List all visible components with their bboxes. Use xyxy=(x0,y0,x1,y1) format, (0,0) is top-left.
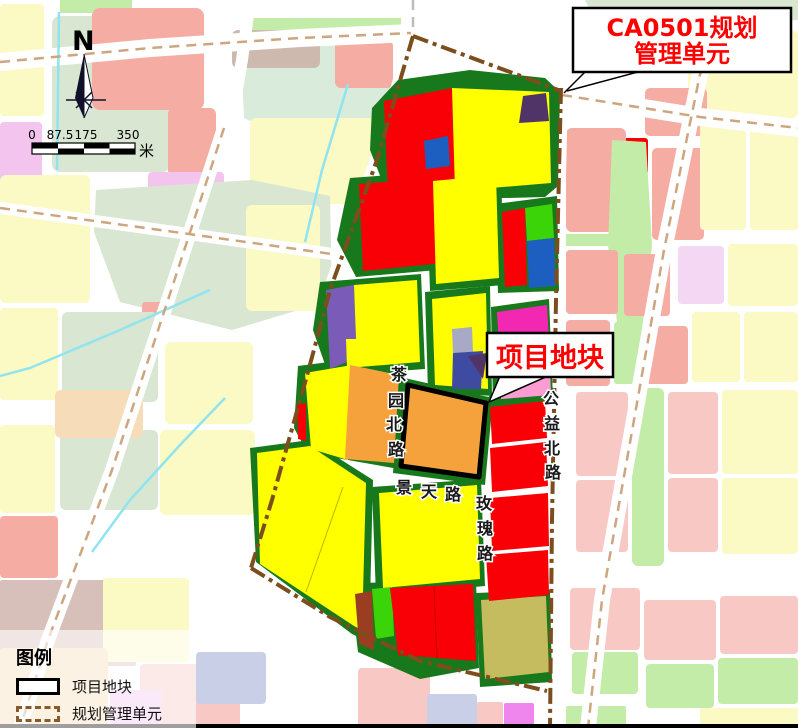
zoning-parcel xyxy=(490,401,547,444)
bg-parcel xyxy=(722,478,798,554)
scale-tick-3: 350 xyxy=(117,128,140,142)
bg-parcel xyxy=(0,516,58,578)
north-label: N xyxy=(72,26,95,57)
bg-parcel xyxy=(165,342,253,424)
road-label-char: 园 xyxy=(388,391,404,410)
road-label-char: 路 xyxy=(477,544,494,563)
zoning-parcel xyxy=(490,493,549,551)
bg-parcel xyxy=(160,430,255,515)
legend-item-label: 项目地块 xyxy=(72,676,132,697)
scale-tick-2: 175 xyxy=(75,128,98,142)
unit-label-callout: CA0501规划 管理单元 xyxy=(573,8,791,72)
map-canvas: 茶园北路景天路玫瑰路公益北路 CA0501规划 管理单元 项目地块 N 0 xyxy=(0,0,798,728)
unit-label-line2: 管理单元 xyxy=(634,40,730,68)
zoning-parcel xyxy=(486,550,549,601)
road-label: 玫瑰路 xyxy=(476,494,494,563)
zoning-parcel xyxy=(502,208,527,287)
zoning-parcel xyxy=(525,204,554,241)
bg-parcel xyxy=(692,312,740,382)
bg-parcel xyxy=(196,652,266,704)
scale-tick-0: 0 xyxy=(28,128,36,142)
scale-unit: 米 xyxy=(139,142,154,160)
legend-item-project: 项目地块 xyxy=(16,676,196,697)
zoning-parcel xyxy=(519,93,549,123)
bg-parcel xyxy=(744,312,798,382)
zoning-parcel xyxy=(433,175,499,284)
road-label-char: 天 xyxy=(421,482,438,501)
legend-title: 图例 xyxy=(16,644,196,670)
road-label-char: 景 xyxy=(396,478,412,497)
road-label-char: 益 xyxy=(544,414,560,433)
bg-parcel xyxy=(668,392,718,474)
road-label-char: 茶 xyxy=(390,365,408,384)
bg-parcel xyxy=(566,250,618,314)
bg-parcel xyxy=(700,120,746,230)
bg-parcel xyxy=(0,425,55,513)
bg-parcel xyxy=(0,308,58,400)
zoning-parcel xyxy=(305,365,352,460)
road-label-char: 北 xyxy=(544,439,560,458)
legend-panel: 图例 项目地块 规划管理单元 xyxy=(0,630,196,728)
bg-parcel xyxy=(335,40,393,88)
zoning-parcel xyxy=(490,442,548,492)
bg-parcel xyxy=(722,390,798,474)
unit-callout-leader xyxy=(567,72,638,91)
bg-parcel xyxy=(427,694,477,728)
bg-parcel xyxy=(728,244,798,306)
bg-parcel xyxy=(646,664,714,708)
project-parcel-symbol xyxy=(16,678,60,695)
zoning-parcel xyxy=(359,178,443,271)
project-label-callout: 项目地块 xyxy=(487,333,613,377)
planning-map-screenshot: 茶园北路景天路玫瑰路公益北路 CA0501规划 管理单元 项目地块 N 0 xyxy=(0,0,798,728)
bg-parcel xyxy=(644,600,716,660)
project-parcel-outline xyxy=(401,385,486,477)
road-label-char: 北 xyxy=(386,415,402,434)
bg-parcel xyxy=(720,596,798,654)
road-label-char: 玫 xyxy=(476,494,493,513)
scale-bar-checker xyxy=(32,143,135,154)
road-label-char: 路 xyxy=(445,485,462,504)
legend-item-label: 规划管理单元 xyxy=(72,703,162,724)
bg-parcel xyxy=(678,246,724,304)
road-label-char: 路 xyxy=(545,463,562,482)
zoning-parcel xyxy=(452,327,473,353)
bg-parcel xyxy=(750,122,798,230)
bg-parcel xyxy=(668,478,718,552)
zoning-parcel xyxy=(527,238,556,288)
project-label-text: 项目地块 xyxy=(496,343,605,374)
road-label-char: 公 xyxy=(543,389,559,408)
zoning-parcel xyxy=(481,596,549,679)
road-label-char: 路 xyxy=(388,440,405,459)
scale-tick-1: 87.5 xyxy=(47,128,74,142)
unit-label-line1: CA0501规划 xyxy=(607,14,758,42)
zoning-parcel xyxy=(424,136,450,169)
road-label-char: 瑰 xyxy=(477,519,493,538)
unit-boundary-symbol xyxy=(16,706,60,722)
project-parcel xyxy=(401,385,486,477)
bg-parcel xyxy=(572,652,638,694)
zoning-parcel xyxy=(390,584,476,661)
zoning-parcel xyxy=(346,280,420,368)
bg-parcel xyxy=(718,658,798,704)
legend-item-unit: 规划管理单元 xyxy=(16,703,196,724)
bg-parcel xyxy=(0,175,90,303)
